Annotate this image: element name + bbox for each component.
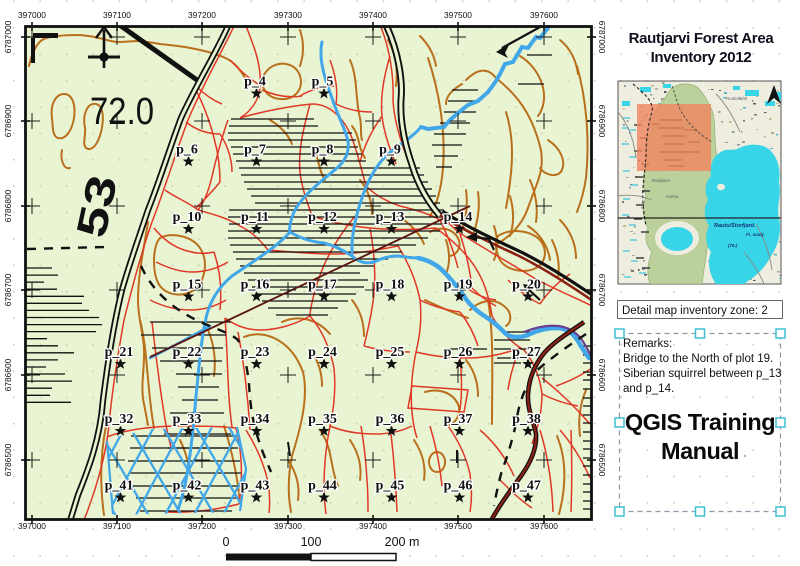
svg-text:6786900: 6786900 (3, 104, 13, 137)
svg-text:p_14: p_14 (444, 210, 473, 225)
svg-text:397100: 397100 (103, 10, 131, 20)
svg-text:p_8: p_8 (312, 143, 334, 158)
svg-text:6787000: 6787000 (3, 20, 13, 53)
svg-text:p_22: p_22 (173, 345, 202, 360)
svg-text:p_41: p_41 (105, 479, 134, 494)
svg-text:Ruokolahti: Ruokolahti (726, 96, 747, 101)
svg-text:397600: 397600 (530, 521, 558, 531)
svg-text:6786500: 6786500 (597, 444, 607, 477)
svg-text:Remarks:: Remarks: (623, 338, 672, 350)
svg-text:Manual: Manual (661, 438, 739, 464)
svg-text:6786900: 6786900 (597, 105, 607, 138)
svg-text:p_23: p_23 (241, 345, 270, 360)
svg-text:p_35: p_35 (308, 412, 337, 427)
svg-text:397000: 397000 (18, 521, 46, 531)
svg-text:metsa: metsa (666, 194, 679, 199)
svg-text:p_10: p_10 (173, 210, 202, 225)
svg-text:6786600: 6786600 (3, 358, 13, 391)
svg-text:Detail map inventory zone: 2: Detail map inventory zone: 2 (622, 305, 768, 317)
svg-text:0: 0 (223, 535, 230, 549)
svg-text:397500: 397500 (444, 521, 472, 531)
svg-text:p_17: p_17 (308, 278, 337, 293)
svg-text:p_15: p_15 (173, 278, 202, 293)
svg-text:p_36: p_36 (376, 412, 405, 427)
svg-text:Rautjarvi: Rautjarvi (652, 178, 670, 183)
svg-text:397000: 397000 (18, 10, 46, 20)
svg-text:p_42: p_42 (173, 479, 202, 494)
svg-text:p_45: p_45 (376, 479, 405, 494)
svg-text:p_7: p_7 (244, 143, 266, 158)
svg-text:6786500: 6786500 (3, 443, 13, 476)
svg-text:QGIS Training: QGIS Training (625, 409, 775, 435)
svg-text:6786600: 6786600 (597, 359, 607, 392)
svg-text:p_47: p_47 (512, 479, 541, 494)
svg-text:6786700: 6786700 (3, 273, 13, 306)
svg-text:p_34: p_34 (241, 412, 270, 427)
svg-text:p_12: p_12 (308, 210, 337, 225)
svg-text:Siberian squirrel between p_13: Siberian squirrel between p_13 (623, 368, 782, 380)
svg-text:p_11: p_11 (241, 210, 269, 225)
svg-text:p_13: p_13 (376, 210, 405, 225)
svg-text:p_25: p_25 (376, 345, 405, 360)
svg-text:397400: 397400 (359, 10, 387, 20)
svg-text:Rautu/Storfjard.: Rautu/Storfjard. (714, 223, 756, 229)
svg-text:p_5: p_5 (312, 75, 334, 90)
svg-text:p_6: p_6 (176, 143, 198, 158)
svg-text:397300: 397300 (274, 10, 302, 20)
svg-text:and p_14.: and p_14. (623, 383, 674, 395)
svg-text:(76.): (76.) (728, 243, 738, 248)
svg-text:6787000: 6787000 (597, 21, 607, 54)
svg-text:6786800: 6786800 (597, 190, 607, 223)
svg-text:p_32: p_32 (105, 412, 134, 427)
svg-text:p_18: p_18 (376, 278, 405, 293)
svg-text:72.0: 72.0 (90, 91, 154, 133)
svg-text:p_16: p_16 (241, 278, 270, 293)
svg-text:p_24: p_24 (308, 345, 337, 360)
svg-text:p_44: p_44 (308, 479, 337, 494)
svg-text:397300: 397300 (274, 521, 302, 531)
svg-text:p_27: p_27 (512, 345, 541, 360)
svg-text:397200: 397200 (188, 10, 216, 20)
svg-text:p_26: p_26 (444, 345, 473, 360)
svg-text:6786700: 6786700 (597, 274, 607, 307)
svg-text:p_9: p_9 (379, 143, 401, 158)
svg-text:397500: 397500 (444, 10, 472, 20)
svg-text:397600: 397600 (530, 10, 558, 20)
svg-text:6786800: 6786800 (3, 189, 13, 222)
svg-text:p_37: p_37 (444, 412, 473, 427)
svg-text:397200: 397200 (188, 521, 216, 531)
svg-text:p_46: p_46 (444, 479, 473, 494)
svg-text:p_4: p_4 (244, 75, 266, 90)
svg-text:100: 100 (301, 535, 322, 549)
svg-text:Inventory 2012: Inventory 2012 (651, 49, 752, 66)
svg-text:p_43: p_43 (241, 479, 270, 494)
svg-text:397100: 397100 (103, 521, 131, 531)
svg-text:Fi. suurj.: Fi. suurj. (746, 232, 765, 237)
svg-text:p_19: p_19 (444, 278, 473, 293)
svg-text:p_21: p_21 (105, 345, 134, 360)
svg-text:Bridge to the North of plot 19: Bridge to the North of plot 19. (623, 353, 773, 365)
svg-text:200 m: 200 m (385, 535, 420, 549)
svg-text:p_33: p_33 (173, 412, 202, 427)
svg-text:p_20: p_20 (512, 278, 541, 293)
svg-text:397400: 397400 (359, 521, 387, 531)
svg-text:Rautjarvi Forest Area: Rautjarvi Forest Area (629, 30, 775, 47)
svg-text:p_38: p_38 (512, 412, 541, 427)
